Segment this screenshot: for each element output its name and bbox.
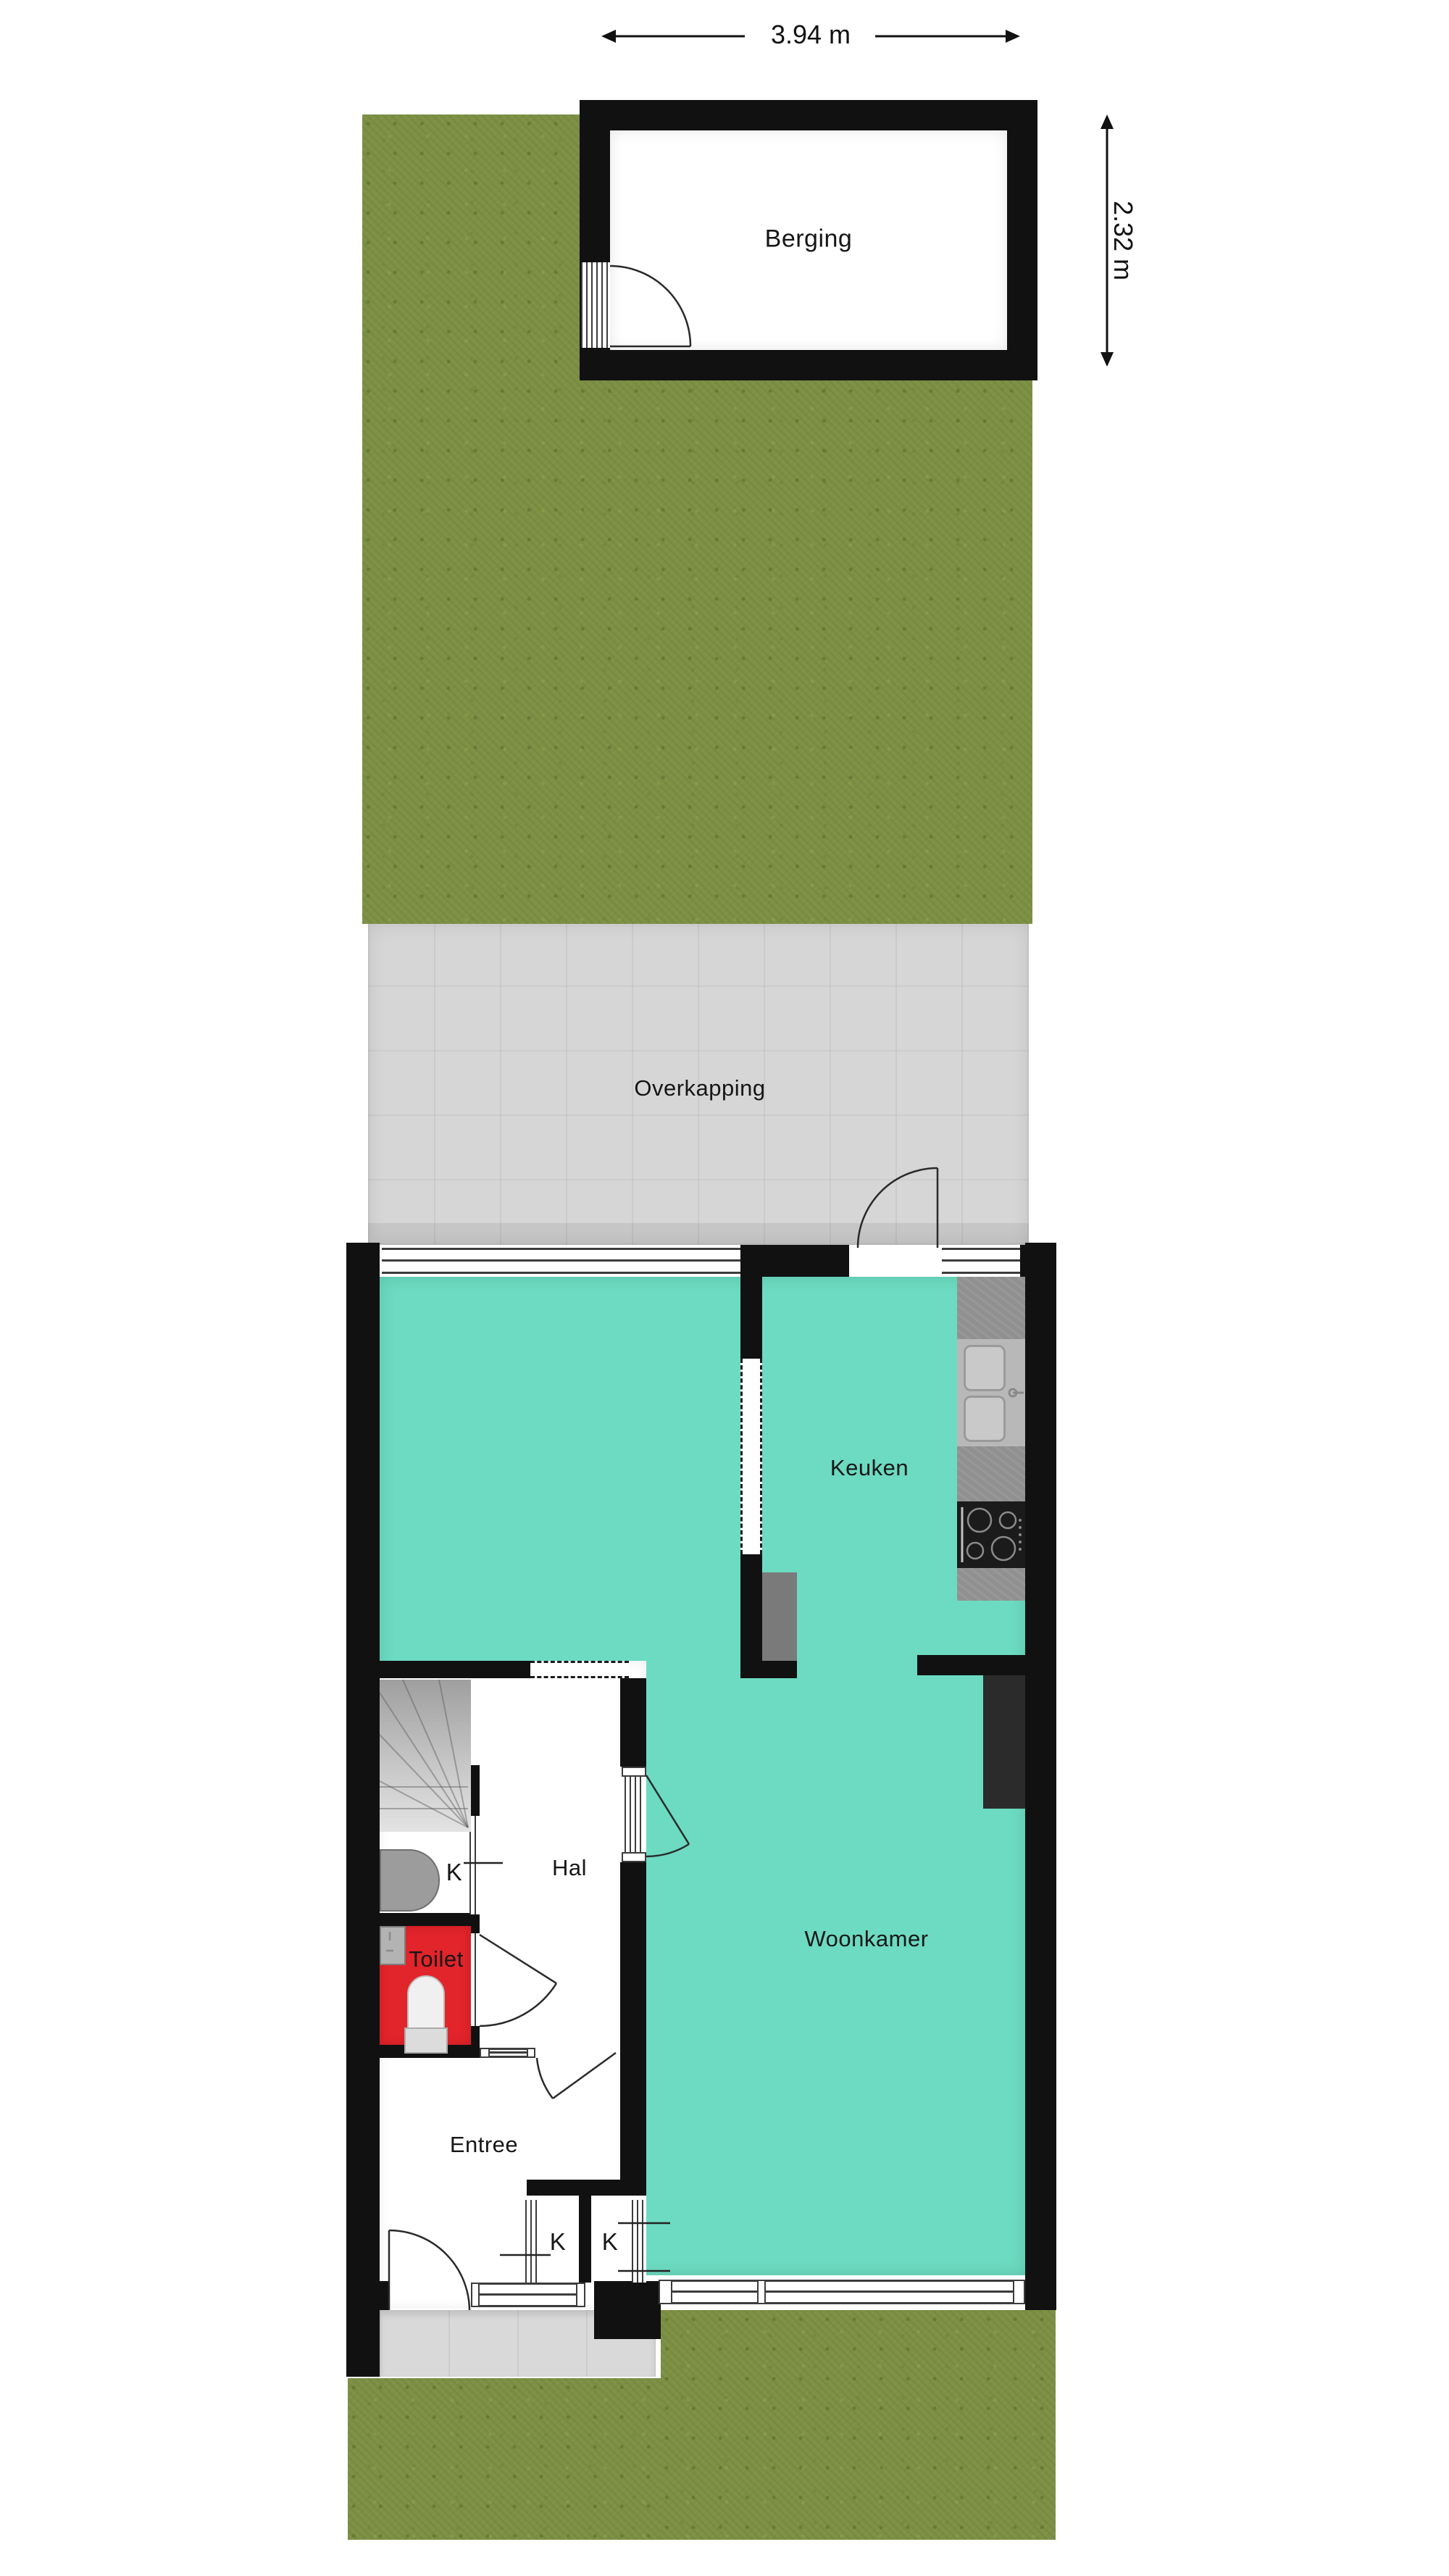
room-label-toilet: Toilet bbox=[409, 1946, 463, 1972]
garden-front-right bbox=[661, 2310, 1056, 2540]
kitchen-counter-mid bbox=[957, 1446, 1025, 1501]
kitchen-opening-dashed bbox=[740, 1359, 762, 1554]
kitchen-sink-bowl-2 bbox=[964, 1396, 1006, 1442]
kitchen-counter-top bbox=[957, 1277, 1025, 1339]
window-entree bbox=[480, 2283, 576, 2307]
front-wall-right-corner bbox=[1020, 1245, 1056, 1277]
closet-divider-wall bbox=[579, 2196, 591, 2283]
room-label-overkapping: Overkapping bbox=[634, 1075, 765, 1101]
window-mullion bbox=[757, 2280, 766, 2304]
room-label-keuken: Keuken bbox=[830, 1455, 909, 1481]
room-label-entree: Entree bbox=[450, 2132, 518, 2158]
understairs-door-frame bbox=[469, 1816, 480, 1914]
window-rear-2 bbox=[766, 2280, 1013, 2304]
entree-corner-block bbox=[594, 2281, 661, 2339]
partition-kitchen-upper bbox=[740, 1277, 762, 1359]
window-jamb bbox=[576, 2283, 585, 2307]
toilet-right-wall-b bbox=[469, 2026, 480, 2045]
window-jamb bbox=[471, 2283, 480, 2307]
window-front-left bbox=[382, 1248, 740, 1274]
room-label-hal: Hal bbox=[552, 1855, 587, 1881]
closet-label-woonkamer: K bbox=[602, 2228, 619, 2256]
door-jamb bbox=[622, 1852, 646, 1862]
window-front-right bbox=[942, 1248, 1020, 1274]
tall-cabinet bbox=[983, 1675, 1025, 1809]
room-label-berging: Berging bbox=[765, 225, 853, 254]
hall-right-wall-upper bbox=[620, 1678, 646, 1767]
partition-kitchen-lower bbox=[740, 1554, 762, 1661]
panel-jamb bbox=[480, 2048, 490, 2058]
exterior-wall-left bbox=[346, 1243, 380, 2377]
closet-entree-door-frame bbox=[525, 2200, 537, 2283]
front-wall-mid-segment bbox=[740, 1245, 849, 1277]
window-jamb bbox=[1013, 2280, 1025, 2304]
overkapping-shadow bbox=[368, 1223, 1029, 1245]
closet-label-entree: K bbox=[550, 2228, 567, 2256]
washing-machine bbox=[380, 1849, 440, 1912]
window-jamb bbox=[659, 2280, 672, 2304]
kitchen-counter-bottom bbox=[957, 1568, 1025, 1601]
toilet-bowl bbox=[407, 1975, 445, 2032]
panel-jamb bbox=[527, 2048, 535, 2058]
hall-opening-dashed bbox=[530, 1661, 629, 1678]
toilet-cistern bbox=[404, 2027, 448, 2054]
room-label-woonkamer: Woonkamer bbox=[804, 1926, 928, 1952]
berging-door-frame bbox=[581, 262, 610, 348]
depth-dimension-label: 2.32 m bbox=[1108, 201, 1138, 280]
closet-label-understairs: K bbox=[446, 1859, 463, 1886]
stairs-stub-wall bbox=[469, 1765, 480, 1816]
kitchen-stub-wall bbox=[917, 1655, 1025, 1675]
kitchen-pillar bbox=[762, 1572, 797, 1661]
window-rear-1 bbox=[672, 2280, 757, 2304]
glazed-panel-hal-entree bbox=[490, 2048, 527, 2058]
kitchen-sink-bowl-1 bbox=[964, 1345, 1006, 1391]
closet-top-wall bbox=[527, 2180, 646, 2196]
closet-woonkamer-door-frame bbox=[632, 2200, 646, 2283]
staircase bbox=[380, 1680, 471, 1832]
floorplan-canvas: 3.94 m 2.32 m Berging Overkapping Keuken… bbox=[0, 0, 1449, 2576]
door-jamb bbox=[622, 1767, 646, 1777]
entree-band-left-wall bbox=[380, 2281, 389, 2310]
width-dimension-label: 3.94 m bbox=[771, 20, 851, 50]
hall-right-wall-lower bbox=[620, 1862, 646, 2188]
kitchen-stove bbox=[957, 1501, 1025, 1568]
hall-top-wall bbox=[380, 1661, 530, 1678]
hal-woonkamer-door-frame bbox=[625, 1777, 645, 1852]
garden-front-left bbox=[348, 2378, 661, 2540]
partition-kitchen-foot bbox=[740, 1661, 797, 1678]
toilet-top-wall bbox=[380, 1913, 480, 1926]
toilet-right-wall-a bbox=[469, 1926, 480, 1933]
toilet-door-frame bbox=[469, 1933, 480, 2026]
toilet-hand-basin bbox=[380, 1926, 406, 1965]
exterior-wall-right bbox=[1025, 1243, 1056, 2310]
